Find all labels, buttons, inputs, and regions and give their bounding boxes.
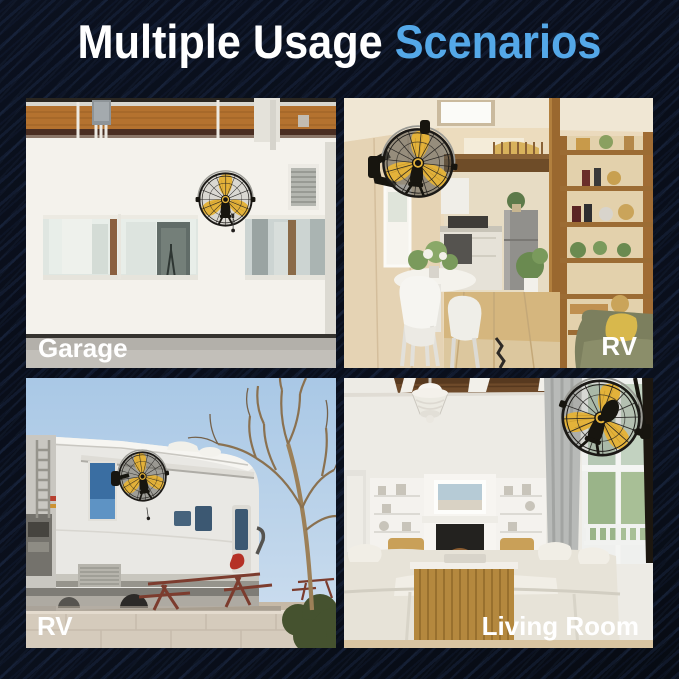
svg-text:RV: RV (37, 611, 73, 641)
svg-text:Garage: Garage (38, 333, 128, 363)
svg-text:RV: RV (601, 331, 637, 361)
svg-text:Living Room: Living Room (482, 611, 639, 641)
